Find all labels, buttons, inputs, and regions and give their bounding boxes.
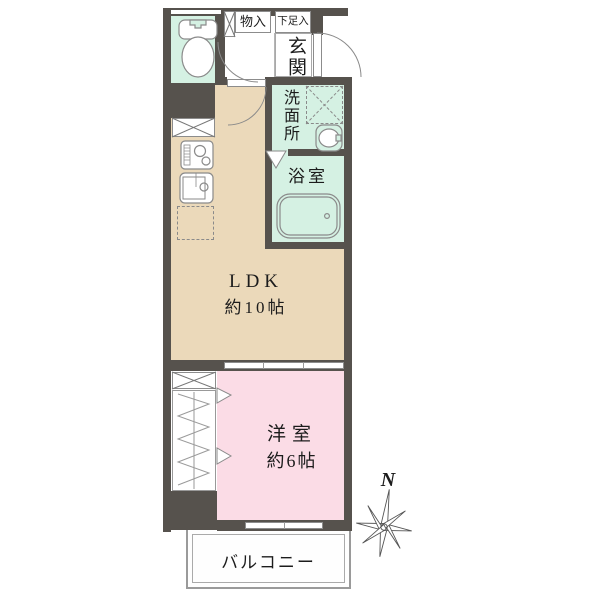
- entry-door-leaf: [313, 33, 322, 77]
- western-room-name: 洋室: [232, 421, 352, 448]
- wall-washroom-top: [265, 77, 351, 85]
- wall-bath-bottom: [265, 242, 351, 249]
- entrance-label: 玄関: [282, 36, 309, 78]
- wall-bottom-left: [163, 491, 217, 530]
- ldk-size: 約10帖: [196, 295, 316, 321]
- sliding-door-tick: [263, 362, 264, 369]
- western-room-label: 洋室 約6帖: [232, 421, 352, 475]
- ldk-label: LDK 約10帖: [196, 269, 316, 321]
- wall-entry-jamb: [311, 8, 323, 35]
- balcony-window-tick: [284, 522, 285, 529]
- compass-north-text: N: [381, 469, 395, 491]
- washroom-label: 洗面所: [277, 89, 301, 143]
- refrigerator-space: [177, 206, 214, 240]
- storage-label: 物入: [235, 11, 271, 33]
- ldk-name: LDK: [196, 269, 316, 295]
- closet: [172, 390, 216, 491]
- balcony-label: バルコニー: [186, 548, 351, 573]
- entrance-step-line: [274, 33, 275, 77]
- window-top: [171, 10, 221, 14]
- sliding-door: [224, 362, 344, 369]
- wall-hall-stub: [215, 77, 227, 85]
- entry-door-arc: [317, 33, 361, 77]
- washing-machine-space: [306, 86, 343, 124]
- floor-plan: 物入 下足入 玄関 洗面所 浴室 LDK 約10帖 洋室 約6帖 バルコニー N: [0, 0, 600, 600]
- wall-left: [163, 8, 171, 532]
- compass-north-label: N: [374, 469, 402, 492]
- pipe-space-column: [224, 11, 235, 37]
- kitchen-pipe-space: [172, 118, 215, 137]
- compass-rose-icon: [352, 485, 417, 560]
- sliding-door-tick: [303, 362, 304, 369]
- washroom-label-text: 洗面所: [281, 89, 298, 143]
- wall-bath-divider: [288, 149, 344, 156]
- balcony-label-text: バルコニー: [221, 553, 316, 572]
- storage-label-text: 物入: [240, 14, 266, 29]
- room-toilet: [171, 16, 215, 83]
- entrance-hall-floor: [224, 33, 265, 77]
- western-room-size: 約6帖: [232, 448, 352, 475]
- western-pipe-space: [172, 372, 216, 389]
- entrance-label-text: 玄関: [285, 36, 306, 78]
- bathroom-label: 浴室: [272, 162, 344, 187]
- wall-toilet-bottom: [171, 83, 215, 118]
- shoe-cabinet-label-text: 下足入: [277, 16, 309, 27]
- shoe-cabinet-label: 下足入: [275, 11, 311, 33]
- bathroom-label-text: 浴室: [288, 167, 328, 186]
- wall-washroom-left: [265, 85, 272, 249]
- ldk-door-leaf: [227, 79, 266, 87]
